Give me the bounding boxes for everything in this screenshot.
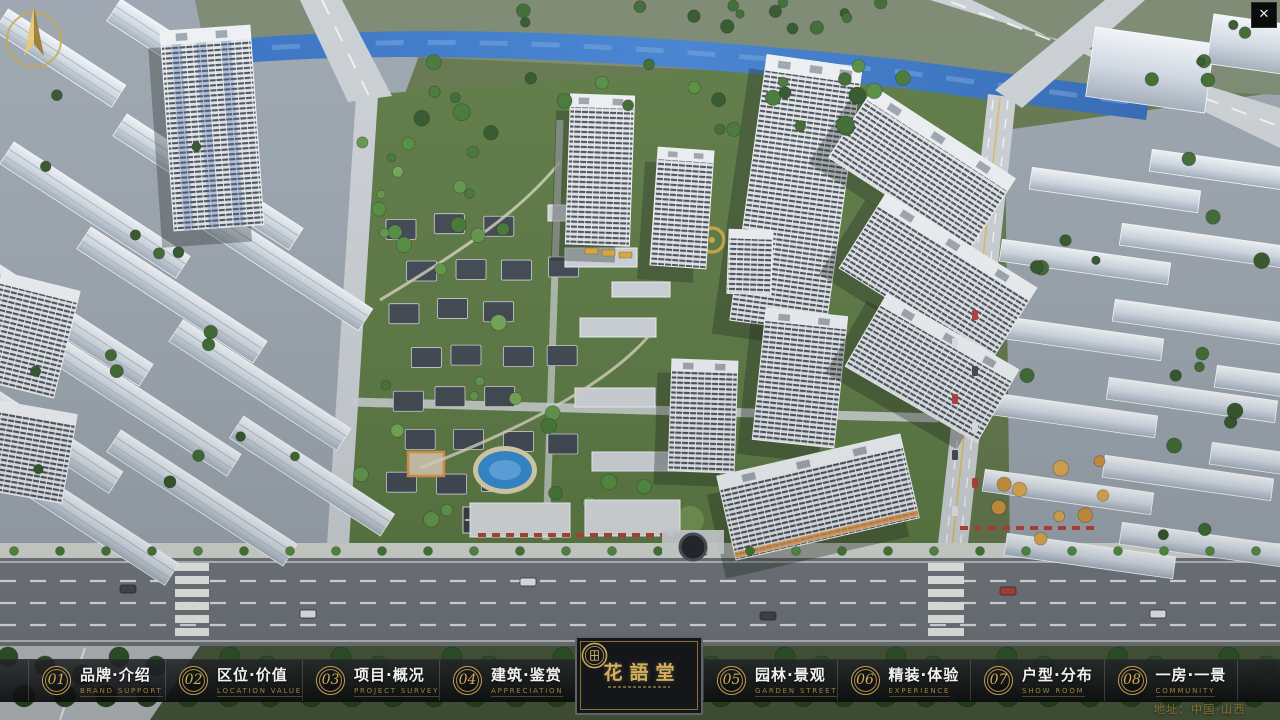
nav-label-zh: 建筑·鉴赏 [491,664,563,685]
nav-badge: 08 [1118,666,1147,695]
project-logo-panel[interactable]: 花語堂 [575,636,703,715]
nav-label-en: APPRECIATION [491,687,563,697]
nav-badge: 01 [42,666,71,695]
nav-label-en: SHOW ROOM [1022,687,1085,697]
nav-item-brand-intro[interactable]: 01 品牌·介绍 BRAND SUPPORT [28,660,165,701]
close-button[interactable]: ✕ [1251,2,1277,28]
nav-item-interior-experience[interactable]: 06 精装·体验 EXPERIENCE [837,660,971,701]
nav-label-zh: 品牌·介绍 [80,664,163,685]
nav-badge: 06 [851,666,880,695]
project-address: 地址：中国·山西 [1154,701,1247,717]
seal-icon [581,642,608,669]
nav-label-en: COMMUNITY [1156,687,1216,697]
bottom-navbar-left: 01 品牌·介绍 BRAND SUPPORT 02 区位·价值 LOCATION… [0,659,576,702]
nav-label-zh: 户型·分布 [1022,664,1093,685]
nav-item-floorplan-distribution[interactable]: 07 户型·分布 SHOW ROOM [970,660,1104,701]
logo-frame: 花語堂 [580,641,698,710]
nav-label-zh: 园林·景观 [755,664,837,685]
logo-tagline [608,686,670,688]
nav-badge: 05 [717,666,746,695]
nav-label-en: GARDEN STREET [755,687,837,697]
nav-label-en: LOCATION VALUE [217,687,302,697]
bottom-navbar-right: 05 园林·景观 GARDEN STREET 06 精装·体验 EXPERIEN… [703,659,1280,702]
nav-badge: 07 [984,666,1013,695]
sales-presentation-window: ✕ 01 品牌·介绍 BRAND SUPPORT 02 区位·价值 LOCATI… [0,0,1280,720]
nav-item-garden-landscape[interactable]: 05 园林·景观 GARDEN STREET [703,660,837,701]
nav-item-location-value[interactable]: 02 区位·价值 LOCATION VALUE [165,660,302,701]
nav-label-zh: 精装·体验 [889,664,960,685]
project-logo-title: 花語堂 [596,664,681,683]
light-overlay [0,0,1280,720]
nav-label-en: BRAND SUPPORT [80,687,163,697]
nav-label-zh: 项目·概况 [354,664,439,685]
compass-north-icon [0,0,68,72]
nav-badge: 03 [316,666,345,695]
nav-item-architecture[interactable]: 04 建筑·鉴赏 APPRECIATION [439,660,576,701]
nav-badge: 02 [179,666,208,695]
nav-label-zh: 一房·一景 [1156,664,1227,685]
nav-item-project-survey[interactable]: 03 项目·概况 PROJECT SURVEY [302,660,439,701]
nav-label-en: PROJECT SURVEY [354,687,439,697]
nav-item-room-view[interactable]: 08 一房·一景 COMMUNITY [1104,660,1239,701]
map-viewport[interactable] [0,0,1280,720]
nav-label-zh: 区位·价值 [217,664,302,685]
nav-badge: 04 [453,666,482,695]
nav-label-en: EXPERIENCE [889,687,951,697]
